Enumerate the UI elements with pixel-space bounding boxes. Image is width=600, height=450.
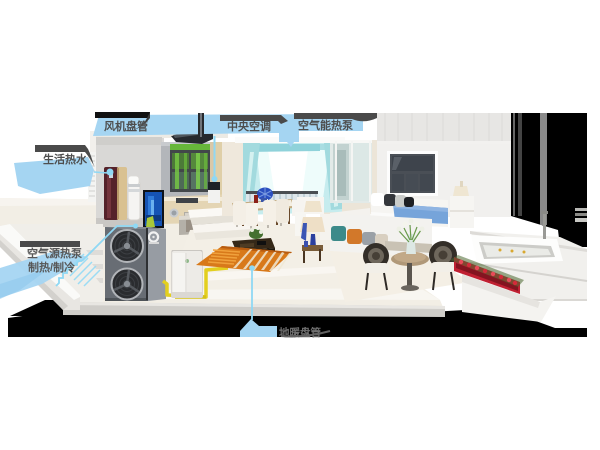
svg-text:空气能热泵: 空气能热泵 — [298, 118, 353, 132]
svg-text:中央空调: 中央空调 — [227, 119, 271, 133]
svg-text:生活热水: 生活热水 — [43, 152, 88, 166]
svg-text:空气源热泵: 空气源热泵 — [27, 246, 82, 260]
svg-text:风机盘管: 风机盘管 — [104, 119, 148, 133]
svg-text:制热/制冷: 制热/制冷 — [28, 260, 75, 274]
